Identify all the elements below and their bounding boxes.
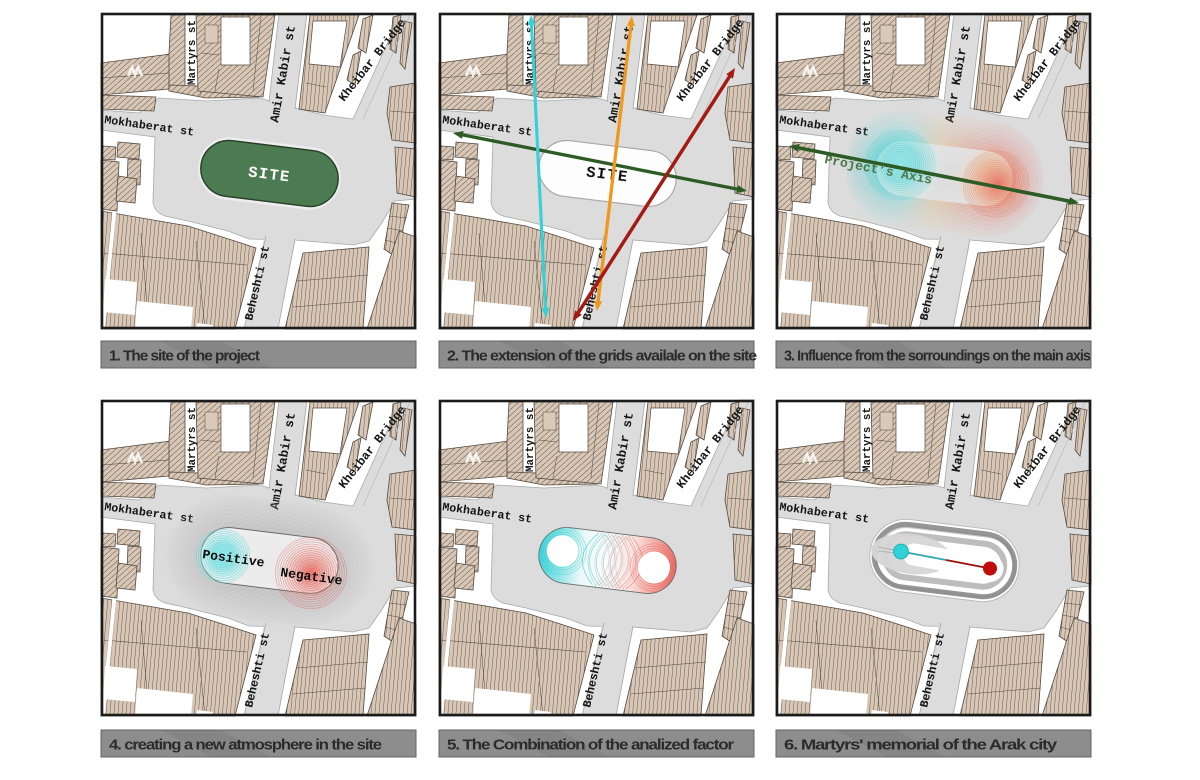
svg-text:4. creating a new atmosphere i: 4. creating a new atmosphere in the site (109, 737, 382, 754)
svg-text:5. The Combination of the anal: 5. The Combination of the analized facto… (447, 737, 734, 754)
svg-text:1. The site of the project: 1. The site of the project (109, 348, 260, 365)
svg-text:2. The extension of the grids: 2. The extension of the grids availale o… (447, 348, 757, 365)
svg-text:3. Influence from the sorround: 3. Influence from the sorroundings on th… (784, 348, 1091, 365)
svg-text:6. Martyrs' memorial of the Ar: 6. Martyrs' memorial of the Arak city (784, 737, 1058, 754)
